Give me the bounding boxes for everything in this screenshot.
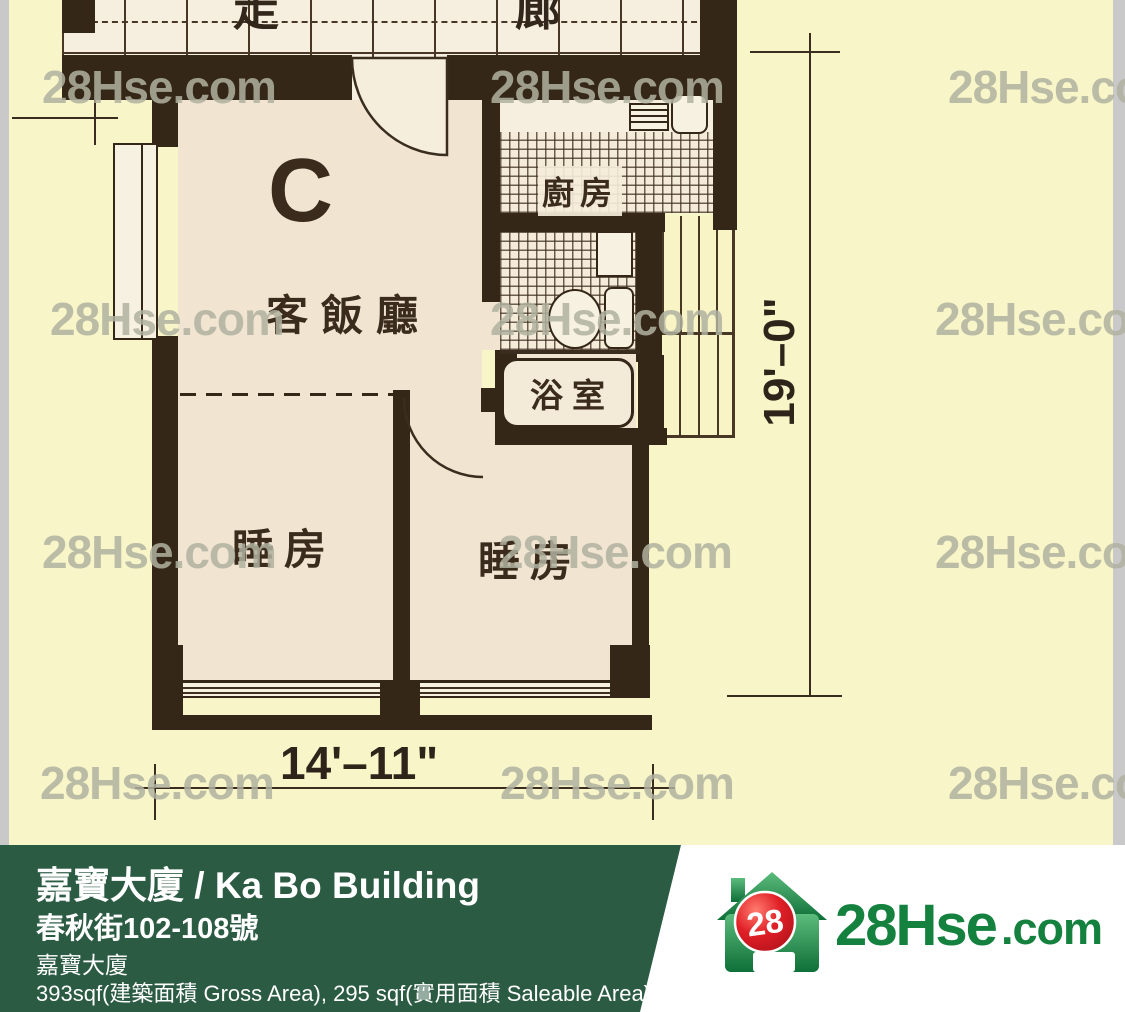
logo-text-main: 28Hse xyxy=(835,892,996,959)
dimension-label-bottom: 14'–11" xyxy=(280,736,438,790)
watermark-28hse: 28Hse.com xyxy=(42,60,276,114)
house-logo-icon: 28 xyxy=(713,870,831,978)
living-room-label: 客飯廳 xyxy=(266,282,431,343)
building-name: 嘉寶大廈 xyxy=(36,946,128,980)
watermark-28hse: 28Hse.com xyxy=(935,292,1125,346)
watermark-28hse: 28Hse.com xyxy=(50,292,284,346)
logo-text-suffix: .com xyxy=(1001,903,1102,955)
watermark-28hse: 28Hse.com xyxy=(948,756,1125,810)
door-arcs-overlay xyxy=(0,0,1125,845)
logo-number: 28 xyxy=(744,902,786,944)
watermark-28hse: 28Hse.com xyxy=(498,525,732,579)
footer-bar: 嘉寶大廈 / Ka Bo Building 春秋街102-108號 嘉寶大廈 3… xyxy=(0,845,1125,1012)
entrance-door-swing xyxy=(352,58,447,155)
kitchen-label: 廚房 xyxy=(538,166,622,216)
watermark-28hse: 28Hse.com xyxy=(490,60,724,114)
bedroom2-door-swing xyxy=(404,398,483,477)
dimension-tick-bottom xyxy=(727,695,842,697)
unit-label: C xyxy=(268,140,333,243)
watermark-28hse: 28Hse.com xyxy=(948,60,1125,114)
watermark-28hse: 28Hse.com xyxy=(42,525,276,579)
floorplan-page: 走 廊 浴室 C 客飯廳 廚房 xyxy=(0,0,1125,1012)
building-title: 嘉寶大廈 / Ka Bo Building xyxy=(36,855,480,909)
area-info: 393sqf(建築面積 Gross Area), 295 sqf(實用面積 Sa… xyxy=(36,976,651,1008)
building-address: 春秋街102-108號 xyxy=(36,905,258,947)
dimension-tick-top xyxy=(750,51,840,53)
watermark-28hse: 28Hse.com xyxy=(40,756,274,810)
watermark-28hse: 28Hse.com xyxy=(490,292,724,346)
partition-dashed-line xyxy=(180,393,393,396)
watermark-28hse: 28Hse.com xyxy=(935,525,1125,579)
dimension-cross-h xyxy=(12,117,118,119)
28hse-logo[interactable]: 28 28Hse .com xyxy=(713,870,1113,990)
watermark-28hse: 28Hse.com xyxy=(500,756,734,810)
